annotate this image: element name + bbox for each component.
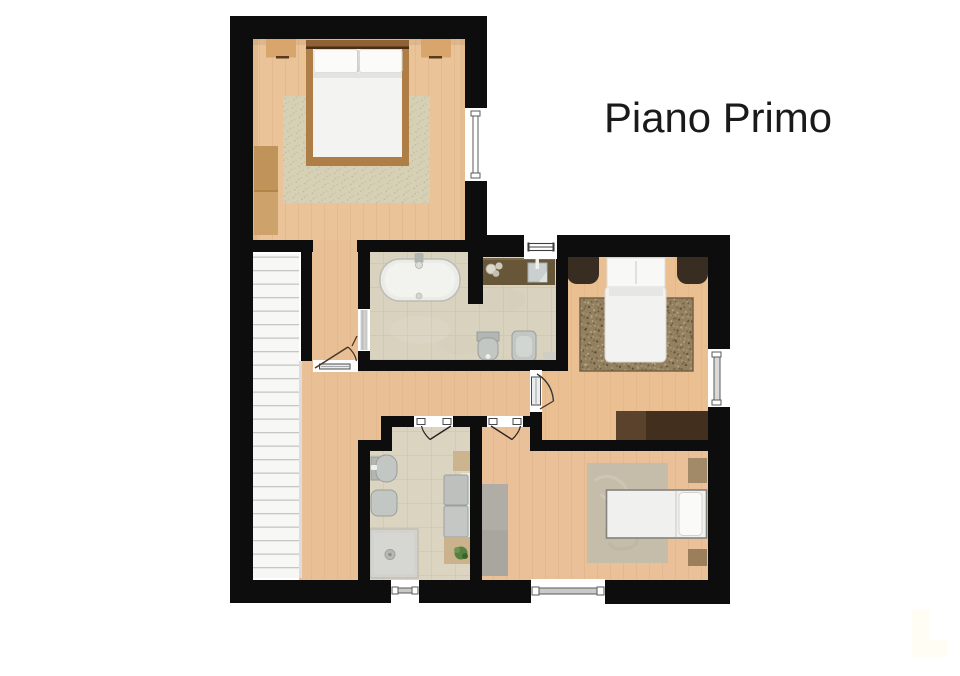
svg-text:Piano Primo: Piano Primo: [604, 94, 832, 141]
